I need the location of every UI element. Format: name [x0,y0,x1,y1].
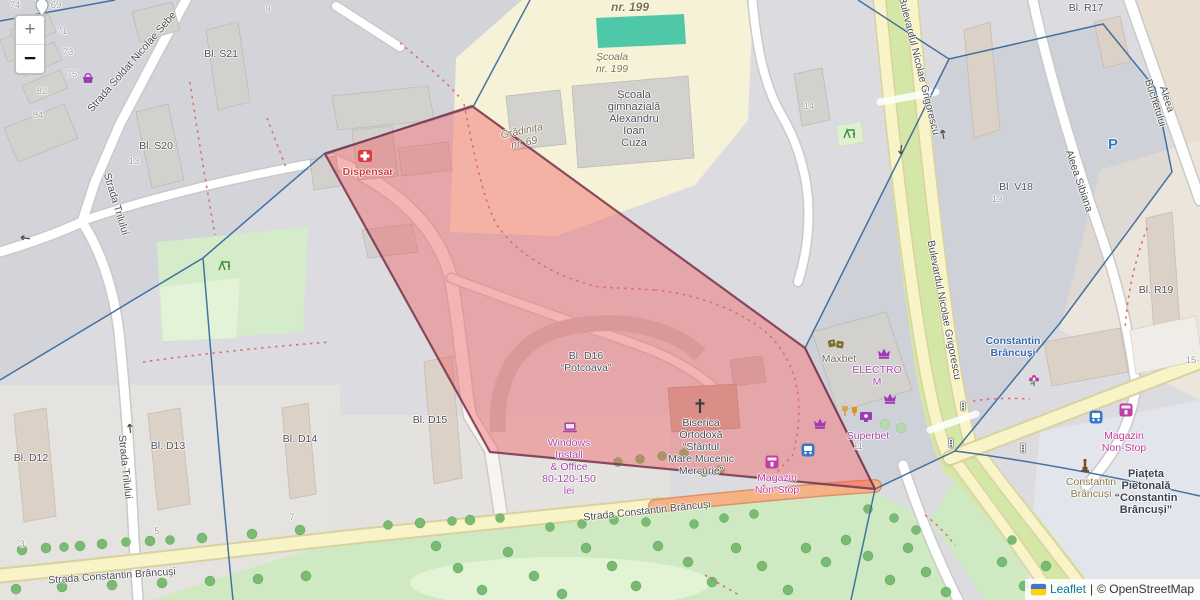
map-tiles [0,0,1200,600]
osm-copyright[interactable]: © OpenStreetMap [1097,582,1194,596]
shop-icon [1120,404,1133,417]
zoom-control: + − [14,14,46,75]
traffic-light-icon [960,401,965,411]
attribution-bar: Leaflet | © OpenStreetMap [1025,579,1200,600]
traffic-light-icon [1020,443,1025,453]
ukraine-flag-icon [1031,584,1046,595]
traffic-light-icon [948,438,953,448]
hospital-icon [358,150,372,162]
zoom-out-button[interactable]: − [16,45,44,73]
map-canvas[interactable]: Strada Soldat Nicolae SebeStrada Trilulu… [0,0,1200,600]
bus-stop-icon [1090,411,1103,424]
leaflet-link[interactable]: Leaflet [1050,582,1086,596]
attribution-separator: | [1090,582,1093,596]
zoom-in-button[interactable]: + [16,16,44,45]
shop-icon [766,456,779,469]
bus-stop-icon [802,444,815,457]
laptop-icon [563,423,577,433]
